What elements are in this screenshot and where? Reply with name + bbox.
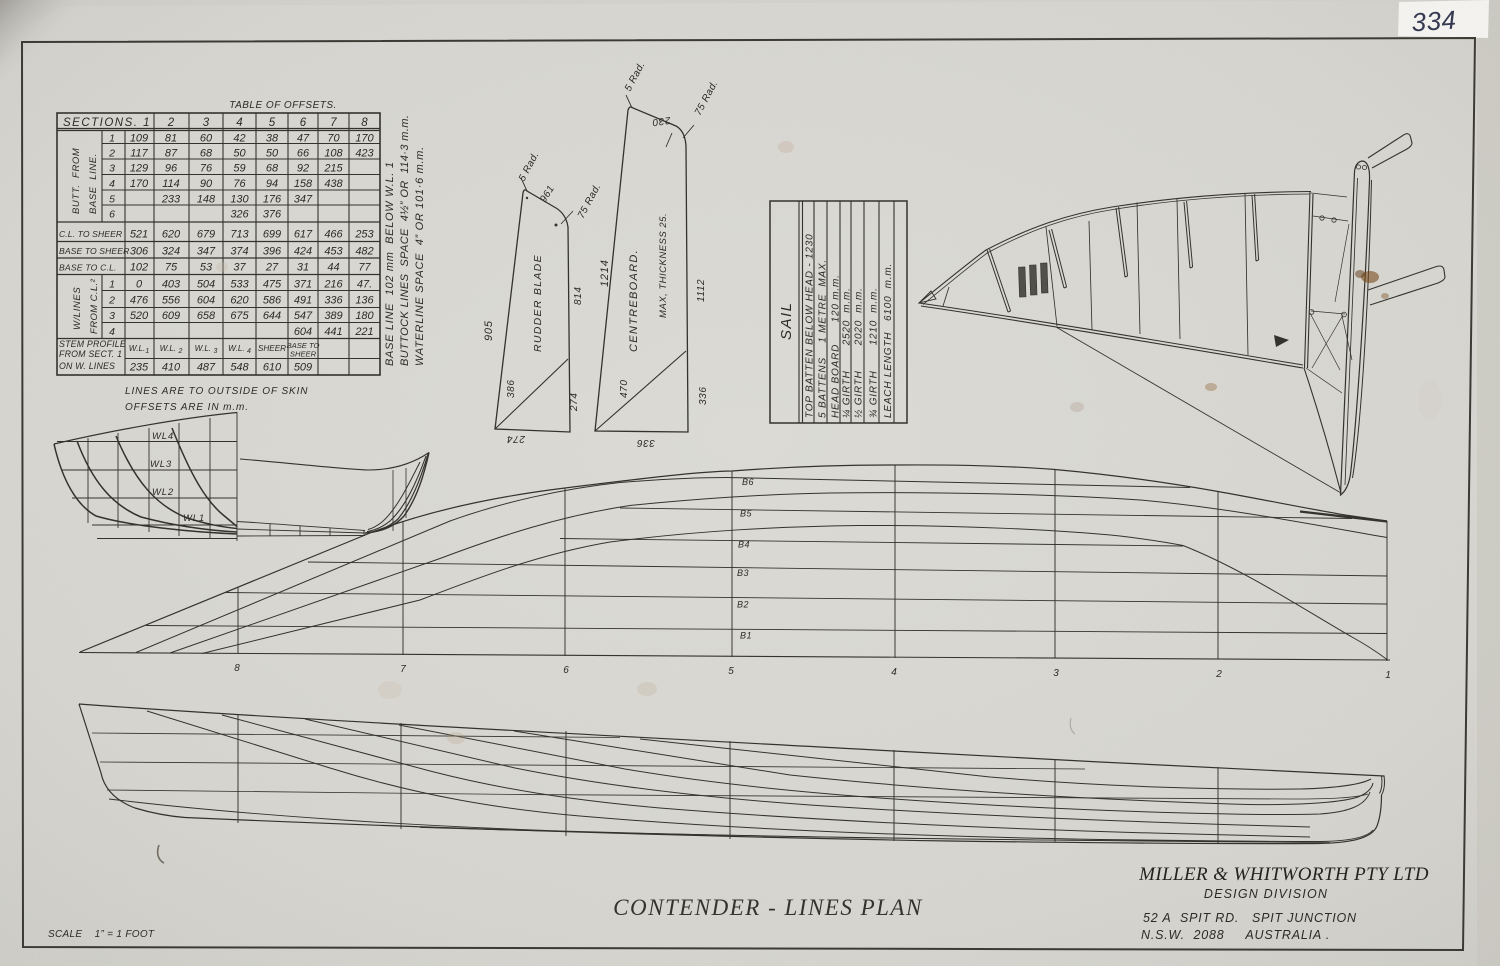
svg-text:1: 1	[109, 133, 115, 145]
svg-text:5 BATTENS 1 METRE MAX.: 5 BATTENS 1 METRE MAX.	[818, 259, 829, 418]
svg-text:604: 604	[197, 295, 215, 307]
svg-text:620: 620	[230, 295, 249, 307]
svg-text:441: 441	[324, 326, 342, 338]
svg-text:129: 129	[130, 163, 148, 175]
svg-text:347: 347	[294, 194, 313, 206]
svg-text:BASE LINE 102 mm BELOW W.L.: BASE LINE 102 mm BELOW W.L. 1	[384, 161, 396, 366]
svg-text:3: 3	[109, 310, 115, 322]
svg-text:TOP BATTEN BELOW HEAD - 1230: TOP BATTEN BELOW HEAD - 1230	[805, 234, 816, 418]
svg-text:BUTTOCK LINES SPACE 4½” OR: BUTTOCK LINES SPACE 4½” OR 114·3 m.m.	[399, 115, 411, 366]
svg-text:253: 253	[354, 229, 374, 241]
svg-text:B1: B1	[740, 631, 752, 641]
svg-text:475: 475	[263, 279, 282, 291]
svg-text:108: 108	[324, 148, 343, 160]
svg-text:4: 4	[236, 117, 242, 129]
svg-text:466: 466	[324, 229, 343, 241]
svg-text:5: 5	[728, 666, 734, 677]
svg-text:604: 604	[294, 326, 312, 338]
svg-text:76: 76	[200, 163, 213, 175]
svg-text:B6: B6	[742, 477, 754, 487]
svg-text:1214: 1214	[599, 259, 611, 287]
svg-text:66: 66	[297, 148, 310, 160]
svg-text:109: 109	[130, 133, 148, 145]
svg-text:491: 491	[294, 295, 312, 307]
svg-text:386: 386	[506, 380, 517, 399]
svg-text:6: 6	[109, 209, 115, 221]
svg-text:60: 60	[200, 133, 213, 145]
svg-text:¾ GIRTH 1210 m.m.: ¾ GIRTH 1210 m.m.	[869, 287, 880, 418]
svg-text:148: 148	[197, 194, 216, 206]
svg-text:170: 170	[130, 178, 149, 190]
svg-text:609: 609	[162, 310, 180, 322]
svg-text:92: 92	[297, 163, 309, 175]
svg-text:C.L. TO SHEER: C.L. TO SHEER	[59, 229, 122, 239]
svg-text:306: 306	[130, 246, 149, 258]
svg-text:424: 424	[294, 246, 312, 258]
svg-text:130: 130	[230, 194, 249, 206]
svg-text:47: 47	[297, 133, 310, 145]
svg-text:MAX, THICKNESS 25.: MAX, THICKNESS 25.	[658, 213, 669, 318]
svg-text:TABLE OF OFFSETS.: TABLE OF OFFSETS.	[229, 100, 337, 111]
svg-text:216: 216	[323, 279, 343, 291]
svg-text:47.: 47.	[357, 279, 372, 291]
svg-text:W/LINES: W/LINES	[72, 287, 83, 330]
svg-text:4: 4	[109, 326, 115, 338]
svg-text:905: 905	[483, 320, 495, 341]
svg-text:814: 814	[573, 287, 584, 306]
svg-text:B5: B5	[740, 509, 753, 519]
svg-text:WL3: WL3	[150, 459, 172, 470]
svg-text:1: 1	[109, 279, 115, 291]
svg-text:31: 31	[297, 262, 309, 274]
svg-text:476: 476	[130, 295, 149, 307]
svg-text:509: 509	[294, 362, 312, 374]
svg-text:87: 87	[165, 148, 178, 160]
svg-text:DESIGN DIVISION: DESIGN DIVISION	[1204, 887, 1328, 901]
svg-text:235: 235	[129, 362, 149, 374]
svg-text:326: 326	[230, 209, 249, 221]
svg-text:MILLER & WHITWORTH PTY LTD: MILLER & WHITWORTH PTY LTD	[1138, 864, 1429, 885]
svg-text:675: 675	[230, 310, 249, 322]
svg-text:324: 324	[162, 246, 180, 258]
svg-text:8: 8	[234, 663, 240, 674]
svg-text:533: 533	[230, 279, 249, 291]
svg-text:679: 679	[197, 229, 215, 241]
svg-text:WATERLINE SPACE 4” OR 101·6 m: WATERLINE SPACE 4” OR 101·6 m.m.	[414, 146, 426, 366]
svg-text:136: 136	[355, 295, 374, 307]
svg-text:BASE TO SHEER: BASE TO SHEER	[59, 246, 129, 256]
svg-text:102: 102	[130, 262, 148, 274]
svg-text:44: 44	[327, 262, 339, 274]
svg-text:CENTREBOARD.: CENTREBOARD.	[628, 249, 640, 352]
svg-text:1: 1	[1385, 670, 1391, 681]
svg-text:2: 2	[108, 295, 115, 307]
svg-text:713: 713	[230, 229, 249, 241]
svg-text:644: 644	[263, 310, 281, 322]
svg-text:8: 8	[361, 117, 368, 129]
svg-text:556: 556	[162, 295, 181, 307]
svg-text:75: 75	[165, 262, 178, 274]
svg-text:37: 37	[233, 262, 246, 274]
svg-text:336: 336	[698, 387, 709, 406]
svg-text:336: 336	[324, 295, 343, 307]
svg-text:374: 374	[230, 246, 248, 258]
svg-text:LINES ARE TO OUTSIDE OF SKIN: LINES ARE TO OUTSIDE OF SKIN	[125, 386, 308, 397]
svg-text:2: 2	[1215, 669, 1222, 680]
svg-text:SCALE 1” = 1 FOOT: SCALE 1” = 1 FOOT	[48, 929, 155, 940]
svg-text:50: 50	[233, 148, 246, 160]
svg-text:5: 5	[109, 194, 115, 206]
svg-text:70: 70	[327, 133, 340, 145]
svg-text:LEACH LENGTH 6100 m.m.: LEACH LENGTH 6100 m.m.	[883, 263, 894, 418]
svg-text:453: 453	[324, 246, 343, 258]
svg-text:6: 6	[300, 117, 307, 129]
svg-text:487: 487	[197, 362, 216, 374]
svg-text:BASE LINE.: BASE LINE.	[88, 153, 99, 214]
svg-text:617: 617	[294, 229, 313, 241]
svg-text:B3: B3	[737, 568, 749, 578]
svg-text:389: 389	[324, 310, 342, 322]
svg-text:90: 90	[200, 178, 213, 190]
svg-text:WL1: WL1	[183, 513, 205, 524]
svg-text:1112: 1112	[696, 279, 707, 302]
svg-text:WL2: WL2	[152, 487, 174, 498]
svg-text:2: 2	[167, 117, 175, 129]
svg-text:OFFSETS ARE IN m.m.: OFFSETS ARE IN m.m.	[125, 402, 249, 413]
svg-text:0: 0	[136, 279, 143, 291]
svg-text:4: 4	[109, 178, 115, 190]
svg-text:53: 53	[200, 262, 213, 274]
svg-text:¼ GIRTH 2520 m.m.: ¼ GIRTH 2520 m.m.	[841, 287, 853, 418]
svg-text:548: 548	[230, 362, 249, 374]
svg-text:470: 470	[619, 380, 630, 399]
svg-text:699: 699	[263, 229, 281, 241]
svg-text:334: 334	[1410, 4, 1457, 37]
svg-text:½ GIRTH 2020 m.m.: ½ GIRTH 2020 m.m.	[854, 287, 865, 418]
svg-text:117: 117	[130, 148, 148, 160]
svg-text:59: 59	[233, 163, 245, 175]
svg-text:410: 410	[162, 362, 181, 374]
svg-text:42: 42	[233, 133, 245, 145]
svg-text:B2: B2	[737, 600, 749, 610]
svg-text:77: 77	[358, 262, 371, 274]
svg-text:96: 96	[165, 163, 178, 175]
svg-text:6: 6	[563, 665, 569, 676]
svg-text:547: 547	[294, 310, 313, 322]
svg-text:3: 3	[109, 163, 115, 175]
svg-text:221: 221	[354, 326, 373, 338]
svg-text:520: 520	[130, 310, 149, 322]
svg-text:7: 7	[330, 117, 337, 129]
svg-text:SHEER: SHEER	[290, 350, 317, 359]
svg-text:FROM C.L.²: FROM C.L.²	[89, 278, 100, 334]
svg-text:68: 68	[200, 148, 213, 160]
svg-text:52 A SPIT RD. SPIT JUNCTION: 52 A SPIT RD. SPIT JUNCTION	[1143, 911, 1357, 925]
svg-text:81: 81	[165, 133, 177, 145]
svg-text:233: 233	[161, 194, 181, 206]
svg-text:3: 3	[203, 117, 210, 129]
svg-text:27: 27	[265, 262, 279, 274]
svg-text:371: 371	[294, 279, 312, 291]
svg-text:7: 7	[400, 664, 406, 675]
svg-text:ON W. LINES: ON W. LINES	[59, 361, 115, 371]
svg-text:3: 3	[1053, 668, 1059, 679]
svg-text:215: 215	[323, 163, 343, 175]
svg-text:658: 658	[197, 310, 216, 322]
svg-text:N.S.W. 2088 AUSTRALIA .: N.S.W. 2088 AUSTRALIA .	[1141, 928, 1330, 942]
svg-text:396: 396	[263, 246, 282, 258]
svg-text:HEAD BOARD 120 m.m.: HEAD BOARD 120 m.m.	[831, 274, 842, 418]
svg-text:BUTT. FROM: BUTT. FROM	[71, 148, 82, 214]
svg-text:B4: B4	[738, 540, 750, 550]
svg-text:376: 376	[263, 209, 282, 221]
svg-text:76: 76	[233, 178, 246, 190]
svg-text:504: 504	[197, 279, 215, 291]
svg-text:274: 274	[569, 393, 580, 413]
svg-text:SAIL: SAIL	[778, 301, 795, 340]
svg-text:RUDDER BLADE: RUDDER BLADE	[532, 254, 544, 352]
svg-text:2: 2	[108, 148, 115, 160]
svg-text:114: 114	[162, 178, 180, 190]
svg-text:BASE TO C.L.: BASE TO C.L.	[59, 263, 117, 273]
svg-text:403: 403	[162, 279, 181, 291]
svg-text:347: 347	[197, 246, 216, 258]
svg-text:423: 423	[355, 148, 374, 160]
svg-text:4: 4	[891, 667, 897, 678]
svg-text:WL4: WL4	[152, 431, 174, 442]
svg-text:274: 274	[507, 433, 527, 444]
svg-text:FROM SECT. 1: FROM SECT. 1	[59, 349, 122, 359]
svg-text:94: 94	[266, 178, 278, 190]
svg-text:521: 521	[130, 229, 148, 241]
svg-text:176: 176	[263, 194, 282, 206]
svg-text:CONTENDER - LINES PLAN: CONTENDER - LINES PLAN	[613, 895, 923, 920]
svg-text:158: 158	[294, 178, 313, 190]
svg-text:620: 620	[162, 229, 181, 241]
svg-text:180: 180	[355, 310, 374, 322]
svg-text:482: 482	[355, 246, 373, 258]
svg-text:586: 586	[263, 295, 282, 307]
svg-text:SECTIONS. 1: SECTIONS. 1	[63, 117, 151, 129]
svg-text:68: 68	[266, 163, 279, 175]
svg-text:38: 38	[266, 133, 279, 145]
svg-text:SHEER: SHEER	[258, 344, 286, 353]
svg-text:170: 170	[355, 133, 374, 145]
svg-text:STEM PROFILE: STEM PROFILE	[59, 339, 126, 349]
svg-text:610: 610	[263, 362, 282, 374]
svg-text:438: 438	[324, 178, 343, 190]
svg-text:5: 5	[269, 117, 276, 129]
svg-text:336: 336	[637, 437, 656, 448]
svg-text:50: 50	[266, 148, 279, 160]
